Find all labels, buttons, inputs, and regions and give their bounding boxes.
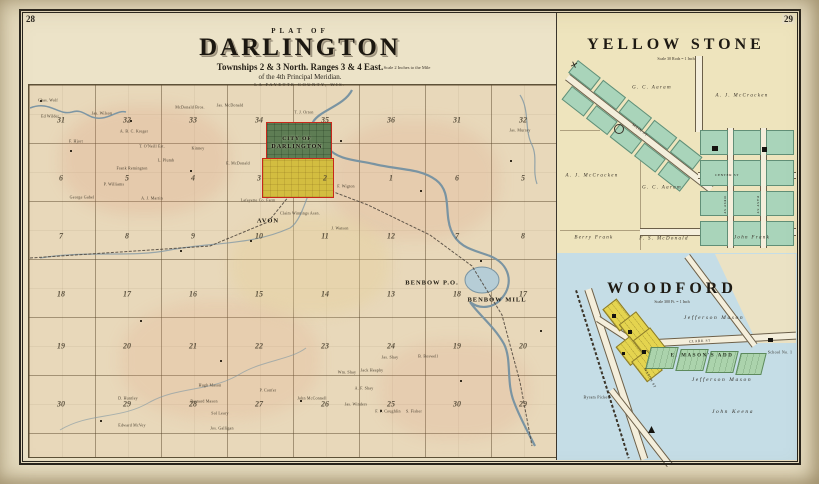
yellow-stone-scale: Scale 30 Rods = 1 Inch [596, 56, 756, 61]
masons-addition-block [735, 353, 766, 375]
plat-map-page: CITY OF DARLINGTON PLAT OF DARLINGTON To… [0, 0, 819, 484]
map-subtitle-meridian: of the 4th Principal Meridian. [150, 73, 450, 81]
woodford-title: WOODFORD [562, 280, 782, 298]
map-subtitle-county: LA FAYETTE COUNTY, WIS. [150, 82, 450, 87]
town-block [700, 221, 728, 246]
town-block [733, 160, 761, 185]
woodford-scale: Scale 300 Ft. = 1 Inch [592, 299, 752, 304]
building-icon [612, 314, 616, 318]
town-block [700, 160, 728, 185]
farmstead-dots [40, 100, 42, 102]
property-line [560, 130, 600, 131]
city-label-line1: CITY OF [252, 136, 342, 142]
page-number-right: 29 [782, 14, 795, 24]
town-block [766, 221, 794, 246]
school-building-icon [768, 338, 773, 342]
city-of-darlington-south [262, 158, 334, 198]
building-icon [642, 350, 646, 354]
building-icon [628, 330, 632, 334]
town-block [733, 221, 761, 246]
city-label-line2: DARLINGTON [252, 144, 342, 150]
town-block [733, 191, 761, 216]
map-scale-note: Scale 2 Inches to the Mile [352, 65, 462, 70]
town-block [733, 130, 761, 155]
masons-addition-block [705, 351, 738, 373]
school-building-icon [762, 147, 767, 152]
town-block [700, 191, 728, 216]
map-title: DARLINGTON [140, 34, 460, 62]
town-block [766, 130, 794, 155]
building-icon [622, 352, 625, 355]
yellow-stone-title: YELLOW STONE [566, 36, 786, 54]
masons-addition-block [675, 349, 708, 371]
north-road [695, 56, 703, 132]
town-block [766, 160, 794, 185]
mill-circle-icon [614, 124, 624, 134]
city-of-darlington-north [266, 122, 332, 162]
page-number-left: 28 [24, 14, 37, 24]
town-block [766, 191, 794, 216]
masons-addition-block [645, 347, 678, 369]
building-icon [712, 146, 718, 151]
town-block [700, 130, 728, 155]
